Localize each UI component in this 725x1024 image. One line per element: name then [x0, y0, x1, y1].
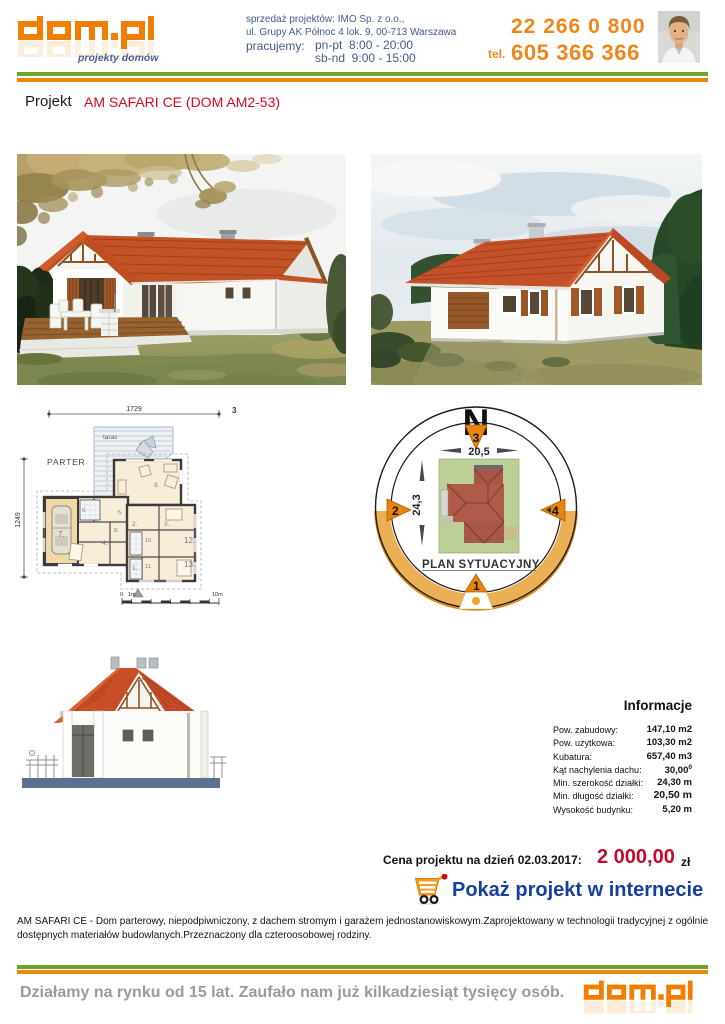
- svg-text:6.: 6.: [82, 508, 87, 514]
- svg-text:3: 3: [473, 431, 480, 445]
- svg-text:11.: 11.: [145, 564, 153, 570]
- svg-text:0: 0: [120, 592, 123, 598]
- svg-text:taras: taras: [103, 434, 118, 441]
- svg-text:1249: 1249: [15, 512, 22, 528]
- svg-text:3.: 3.: [164, 521, 170, 528]
- svg-text:2.: 2.: [132, 521, 138, 528]
- svg-text:8.: 8.: [114, 528, 119, 534]
- svg-text:3: 3: [232, 406, 237, 415]
- svg-text:24,3: 24,3: [411, 494, 423, 515]
- svg-text:20,5: 20,5: [468, 446, 489, 458]
- svg-text:PARTER: PARTER: [47, 457, 86, 467]
- svg-text:9.: 9.: [154, 482, 160, 489]
- svg-text:PLAN SYTUACYJNY: PLAN SYTUACYJNY: [422, 559, 540, 571]
- svg-text:4.: 4.: [102, 540, 108, 547]
- svg-text:10.: 10.: [145, 538, 153, 544]
- svg-text:1.: 1.: [132, 565, 138, 572]
- svg-text:1m: 1m: [128, 592, 136, 598]
- svg-text:1: 1: [473, 579, 480, 593]
- svg-text:7.: 7.: [58, 530, 65, 539]
- svg-text:12.: 12.: [184, 536, 195, 545]
- svg-text:4: 4: [552, 504, 559, 518]
- svg-text:13.: 13.: [184, 560, 195, 569]
- svg-text:2: 2: [392, 504, 399, 518]
- svg-text:10m: 10m: [212, 592, 223, 598]
- svg-text:5.: 5.: [118, 510, 123, 516]
- svg-text:1729: 1729: [126, 406, 142, 413]
